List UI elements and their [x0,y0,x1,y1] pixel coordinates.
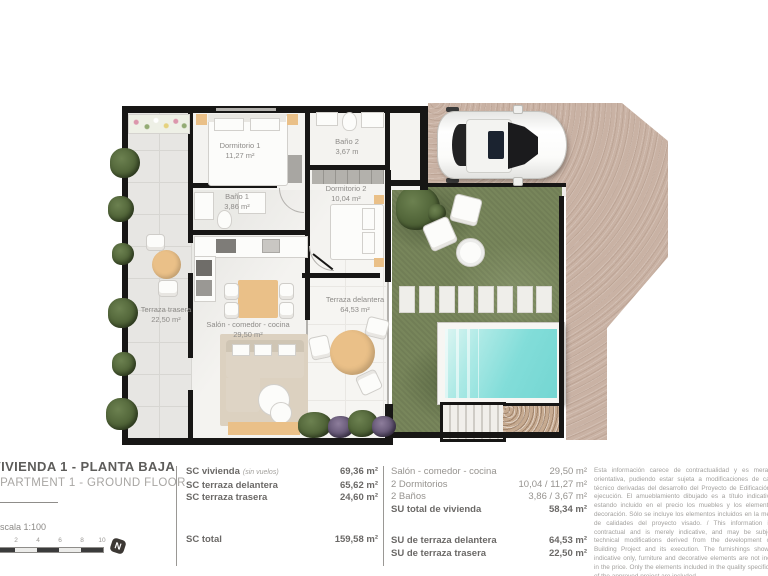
paver [537,287,551,312]
closet [288,155,302,183]
north-arrow-icon: N [109,537,127,555]
cushion [232,344,250,356]
dining-chair [279,302,294,319]
sheet-title-spanish: VIVIENDA 1 - PLANTA BAJA [0,459,175,474]
table-row: 2 Dormitorios 10,04 / 11,27 m² [391,479,587,492]
room-label-bano2: Baño 23,67 m [317,137,377,156]
bathroom2-shower [361,112,384,128]
bathroom2-sink [316,112,338,126]
legal-disclaimer: Esta información carece de contractualid… [594,467,768,576]
table-row: SC terraza delantera 65,62 m² [186,480,378,493]
car-mirror [513,105,523,114]
cooktop [216,239,236,253]
room-label-terraza-delantera: Terraza delantera64,53 m² [315,295,395,314]
kitchen-sink [262,239,280,253]
inner-wall [385,240,391,282]
room-label-salon: Salón - comedor - cocina29,50 m² [188,320,308,339]
table-divider [383,466,384,566]
room-label-dormitorio2: Dormitorio 210,04 m² [306,184,386,203]
scale-label: Escala 1:100 [0,522,46,532]
pillow [362,208,375,230]
scale-tick: 4 [32,537,44,544]
dining-table [238,280,278,318]
bathroom2-toilet [342,112,357,131]
car-sunroof [488,131,504,159]
inner-wall [302,273,380,278]
wardrobe [312,170,384,184]
dining-chair [224,283,239,300]
garden-table [456,238,485,267]
table-divider [176,466,177,566]
kitchen-counter [194,236,308,258]
sc-areas-table: SC vivienda(sin vuelos) 69,36 m² SC terr… [186,466,378,546]
inner-wall [188,390,193,438]
table-row: 2 Baños 3,86 / 3,67 m² [391,491,587,504]
inner-wall [388,180,428,186]
terrace-table-back [152,250,181,279]
pool-steps [445,329,479,398]
pillow [362,232,375,254]
inner-wall [385,113,390,170]
outer-wall-bottom [122,438,393,445]
car-mirror [513,177,523,186]
oven [196,260,212,276]
outer-wall-right-upper [420,106,428,190]
plant [112,243,134,265]
side-table [270,402,292,424]
su-areas-table: Salón - comedor - cocina 29,50 m² 2 Dorm… [391,466,587,560]
bed-double-2 [330,204,384,260]
scale-tick: 6 [54,537,66,544]
scale-tick: 8 [76,537,88,544]
car-wheel [446,178,459,183]
paver [400,287,414,312]
room-label-bano1: Baño 13,86 m² [207,192,267,211]
table-row: SC terraza trasera 24,60 m² [186,492,378,505]
scale-tick: 10 [96,537,108,544]
paver [459,287,473,312]
bench [228,422,300,435]
garden-bottom-wall [392,432,564,438]
inner-wall [192,230,305,235]
fridge [196,280,212,296]
table-row-total: SU total de vivienda 58,34 m² [391,504,587,517]
table-row: SC vivienda(sin vuelos) 69,36 m² [186,466,378,480]
paver [498,287,512,312]
dining-chair [279,283,294,300]
cushion [278,344,296,356]
bedroom1-window [216,108,276,111]
scale-tick: 2 [10,537,22,544]
nightstand [374,258,384,267]
paver [420,287,434,312]
inner-wall [305,255,310,320]
pillow [214,118,244,131]
table-row-total: SU de terraza delantera 64,53 m² [391,535,587,548]
sheet-title-english: APARTMENT 1 - GROUND FLOOR [0,477,186,489]
cushion [254,344,272,356]
table-row-total: SU de terraza trasera 22,50 m² [391,548,587,561]
paver [479,287,493,312]
paver [518,287,532,312]
terrace-table-front [330,330,375,375]
floor-plan-sheet: Dormitorio 111,27 m² Baño 23,67 m Baño 1… [0,0,768,576]
terrace-chair [158,280,178,297]
scale-bar [0,547,104,553]
nightstand [196,114,207,125]
pillow [250,118,280,131]
table-row-total: SC total 159,58 m² [186,534,378,547]
bathroom1-toilet [217,210,232,229]
sofa-chaise [226,378,260,412]
nightstand [287,114,298,125]
dining-chair [224,302,239,319]
table-row: Salón - comedor - cocina 29,50 m² [391,466,587,479]
inner-wall [385,170,391,242]
flower-planter [128,114,190,134]
title-divider [0,502,58,503]
terrace-chair [146,234,165,251]
room-label-dormitorio1: Dormitorio 111,27 m² [200,141,280,160]
paver [440,287,454,312]
garden-right-wall [559,196,564,436]
